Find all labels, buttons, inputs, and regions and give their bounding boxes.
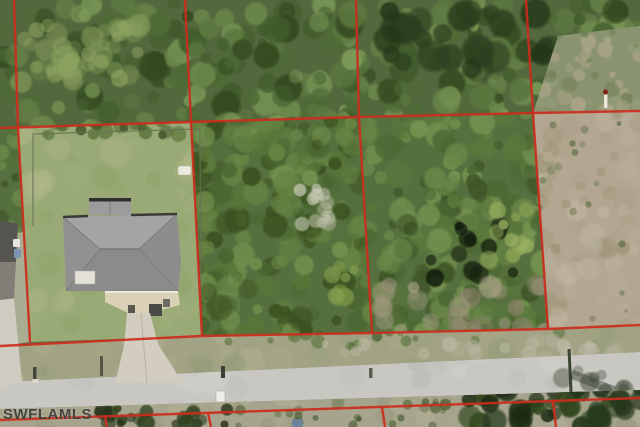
parcel-boundary-2 — [185, 0, 202, 336]
parcel-boundary-overlay — [0, 0, 640, 427]
mls-logo-fragment — [292, 419, 303, 427]
watermark-text: SWFLAMLS — [3, 406, 92, 423]
south-tick-3 — [382, 407, 385, 427]
north-parcel-line — [0, 111, 640, 128]
south-tick-1 — [105, 416, 107, 427]
south-tick-4 — [553, 401, 556, 427]
west-parcel-boundary — [14, 0, 30, 342]
south-parcel-line — [0, 325, 640, 346]
road-south-parcel-line — [0, 398, 640, 420]
parcel-boundary-3 — [356, 0, 372, 333]
parcel-boundary-4 — [526, 0, 548, 329]
aerial-parcel-photo: SWFLAMLS — [0, 0, 640, 427]
south-tick-2 — [208, 413, 211, 427]
